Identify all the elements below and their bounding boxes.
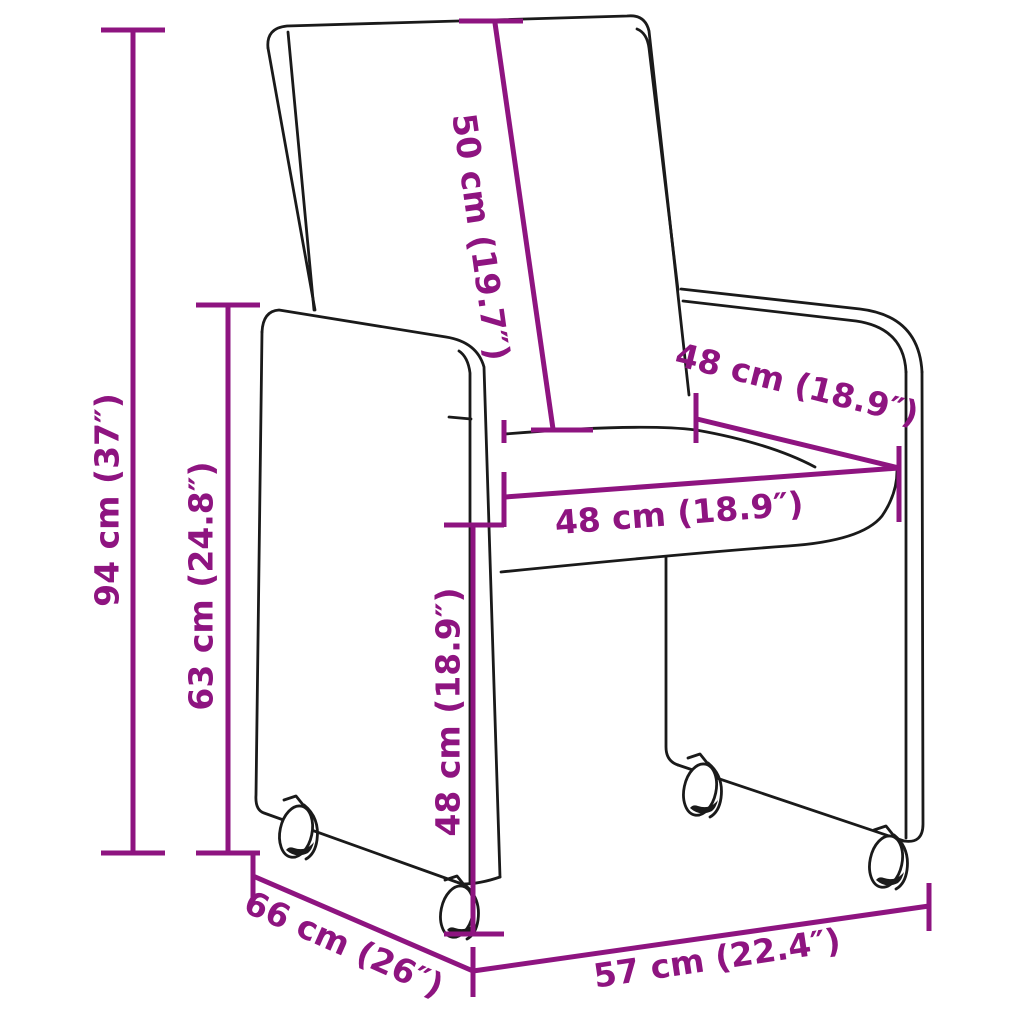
caster-wheel-rear-right [679,754,721,818]
label-back-width: 48 cm (18.9″) [671,335,922,433]
left-panel-bottom-join [462,877,500,884]
label-overall-height: 94 cm (37″) [88,393,127,607]
label-seat-height: 48 cm (18.9″) [429,587,468,836]
seat-back-seam [505,427,815,467]
chair-outline [256,16,923,941]
label-width: 57 cm (22.4″) [591,920,843,995]
left-armrest-inner-ledge [449,417,471,419]
label-backrest-length: 50 cm (19.7″) [444,111,517,363]
label-depth: 66 cm (26″) [238,883,449,1006]
underseat-right-edge [666,557,678,765]
backrest-left-edge [268,48,315,310]
backrest-left-inner-edge [288,32,314,310]
chair-casters [275,754,907,940]
diagram-canvas: 94 cm (37″) 63 cm (24.8″) 50 cm (19.7″) … [0,0,1024,1024]
chair-seat [501,427,897,765]
dimension-labels: 94 cm (37″) 63 cm (24.8″) 50 cm (19.7″) … [88,111,923,1005]
label-side-panel-height: 63 cm (24.8″) [182,461,221,710]
dimension-lines [101,21,929,997]
dimension-diagram: 94 cm (37″) 63 cm (24.8″) 50 cm (19.7″) … [0,0,1024,1024]
caster-wheel-rear-left [275,796,317,860]
caster-wheel-front-right [865,826,907,890]
